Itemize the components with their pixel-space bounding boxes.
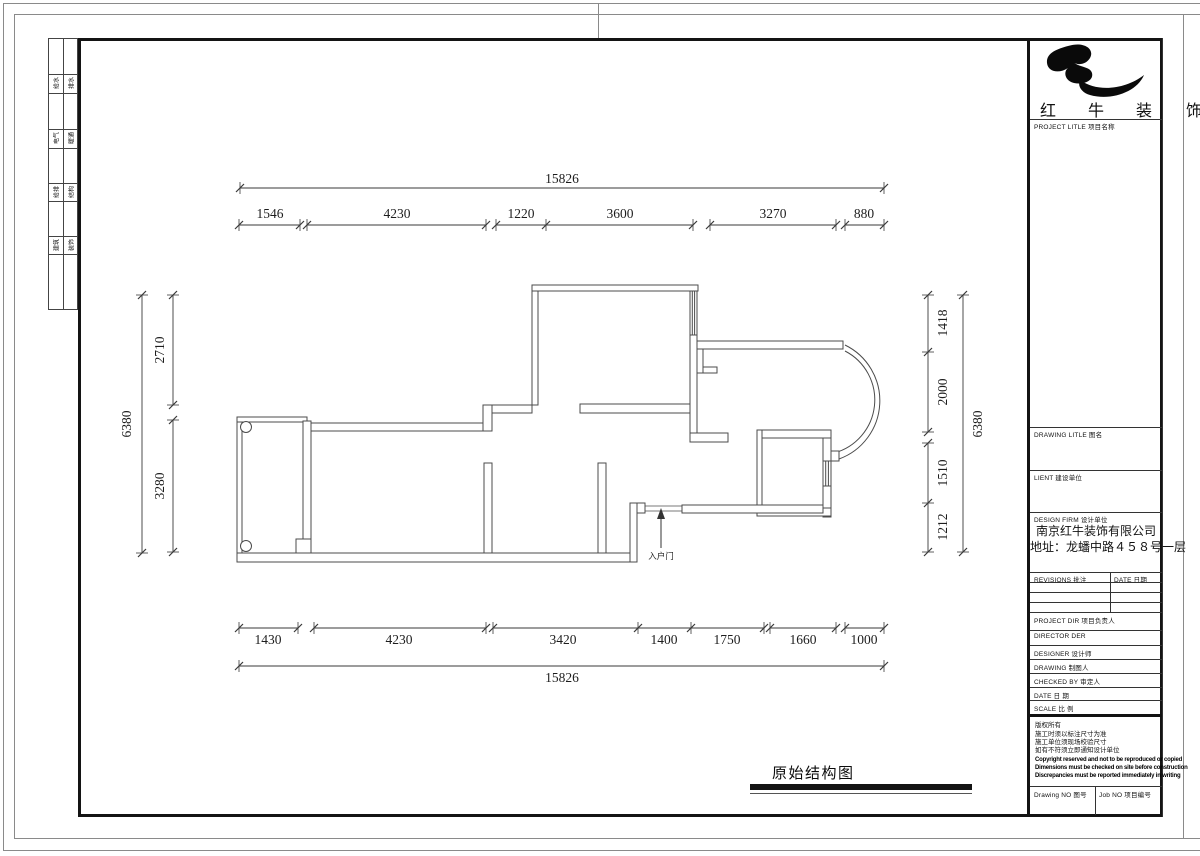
dim-right-seg: 2000	[935, 379, 951, 406]
title-underline-thin	[750, 793, 972, 794]
dim-right-seg: 1212	[935, 514, 951, 541]
job-no-label: Job NO 项目编号	[1099, 789, 1151, 799]
sheet-margin-line	[14, 14, 1200, 15]
dim-bottom-seg: 1400	[651, 632, 678, 648]
dim-bottom-seg: 1660	[790, 632, 817, 648]
drawing-no-label: Drawing NO 图号	[1034, 789, 1087, 799]
dim-right-seg: 1418	[935, 310, 951, 337]
strip-cell-label: 电气	[52, 132, 61, 144]
sheet-margin-line	[1183, 14, 1184, 838]
title-underline	[750, 784, 972, 790]
info-row: DATE 日 期	[1034, 690, 1069, 700]
dim-bottom-seg: 1000	[851, 632, 878, 648]
brand-name: 红 牛 装	[1040, 97, 1152, 121]
dim-left-seg: 2710	[152, 337, 168, 364]
dim-left-total: 6380	[119, 411, 135, 438]
dim-right-total: 6380	[970, 411, 986, 438]
brand-name-overflow-char: 饰	[1186, 97, 1200, 121]
copyright-line-en: Discrepancies must be reported immediate…	[1035, 773, 1180, 779]
dim-bottom-total: 15826	[545, 670, 579, 686]
copyright-line-en: Dimensions must be checked on site befor…	[1035, 765, 1188, 771]
dim-right-seg: 1510	[935, 460, 951, 487]
discipline-strip: 给水 排水 电气 暖通 给排 结构 建筑 装饰	[48, 38, 78, 310]
project-title-label: PROJECT LITLE 项目名称	[1034, 121, 1115, 131]
dim-top-seg: 4230	[384, 206, 411, 222]
info-row: DRAWING 制图人	[1034, 662, 1089, 672]
info-row: CHECKED BY 审定人	[1034, 676, 1100, 686]
sheet-margin-line	[3, 3, 4, 850]
sheet-margin-line	[3, 850, 1200, 851]
dim-bottom-seg: 4230	[386, 632, 413, 648]
title-block: 红 牛 装 PROJECT LITLE 项目名称 DRAWING LITLE 图…	[1030, 38, 1163, 817]
company-name: 南京红牛装饰有限公司	[1030, 522, 1162, 539]
brand-logo	[1038, 42, 1150, 98]
client-label: LIENT 建设单位	[1034, 472, 1082, 482]
company-address: 地址：龙蟠中路４５８号一层	[1030, 538, 1162, 555]
entry-door-label: 入户门	[648, 550, 674, 562]
drawing-no-divider	[1095, 786, 1096, 815]
dim-left-seg: 3280	[152, 473, 168, 500]
sheet-margin-line	[14, 14, 15, 838]
strip-cell-label: 给水	[52, 77, 61, 89]
drawing-frame	[78, 38, 1163, 817]
strip-divider	[63, 39, 64, 309]
drawing-sheet: 给水 排水 电气 暖通 给排 结构 建筑 装饰	[0, 0, 1200, 856]
info-row: DIRECTOR DER	[1034, 633, 1086, 640]
dim-top-seg: 3600	[607, 206, 634, 222]
drawing-title: 原始结构图	[772, 762, 855, 783]
strip-cell-label: 排水	[67, 77, 76, 89]
strip-cell-label: 结构	[67, 186, 76, 198]
copyright-line: 如有不符须立即通知设计单位	[1035, 744, 1120, 754]
info-row: SCALE 比 例	[1034, 703, 1074, 713]
drawing-title-label: DRAWING LITLE 图名	[1034, 429, 1102, 439]
dim-bottom-seg: 3420	[550, 632, 577, 648]
copyright-line-en: Copyright reserved and not to be reprodu…	[1035, 757, 1182, 763]
info-row: PROJECT DIR 项目负责人	[1034, 615, 1115, 625]
dim-bottom-seg: 1430	[255, 632, 282, 648]
dim-top-seg: 3270	[760, 206, 787, 222]
sheet-margin-line	[3, 3, 1200, 4]
sheet-fold-mark	[598, 3, 599, 40]
info-row: DESIGNER 设计师	[1034, 648, 1092, 658]
dim-top-seg: 1546	[257, 206, 284, 222]
strip-cell-label: 装饰	[67, 239, 76, 251]
strip-cell-label: 暖通	[67, 132, 76, 144]
strip-cell-label: 给排	[52, 186, 61, 198]
dim-top-total: 15826	[545, 171, 579, 187]
strip-cell-label: 建筑	[52, 239, 61, 251]
dim-top-seg: 880	[854, 206, 874, 222]
dim-bottom-seg: 1750	[714, 632, 741, 648]
dim-top-seg: 1220	[508, 206, 535, 222]
sheet-margin-line	[14, 838, 1200, 839]
